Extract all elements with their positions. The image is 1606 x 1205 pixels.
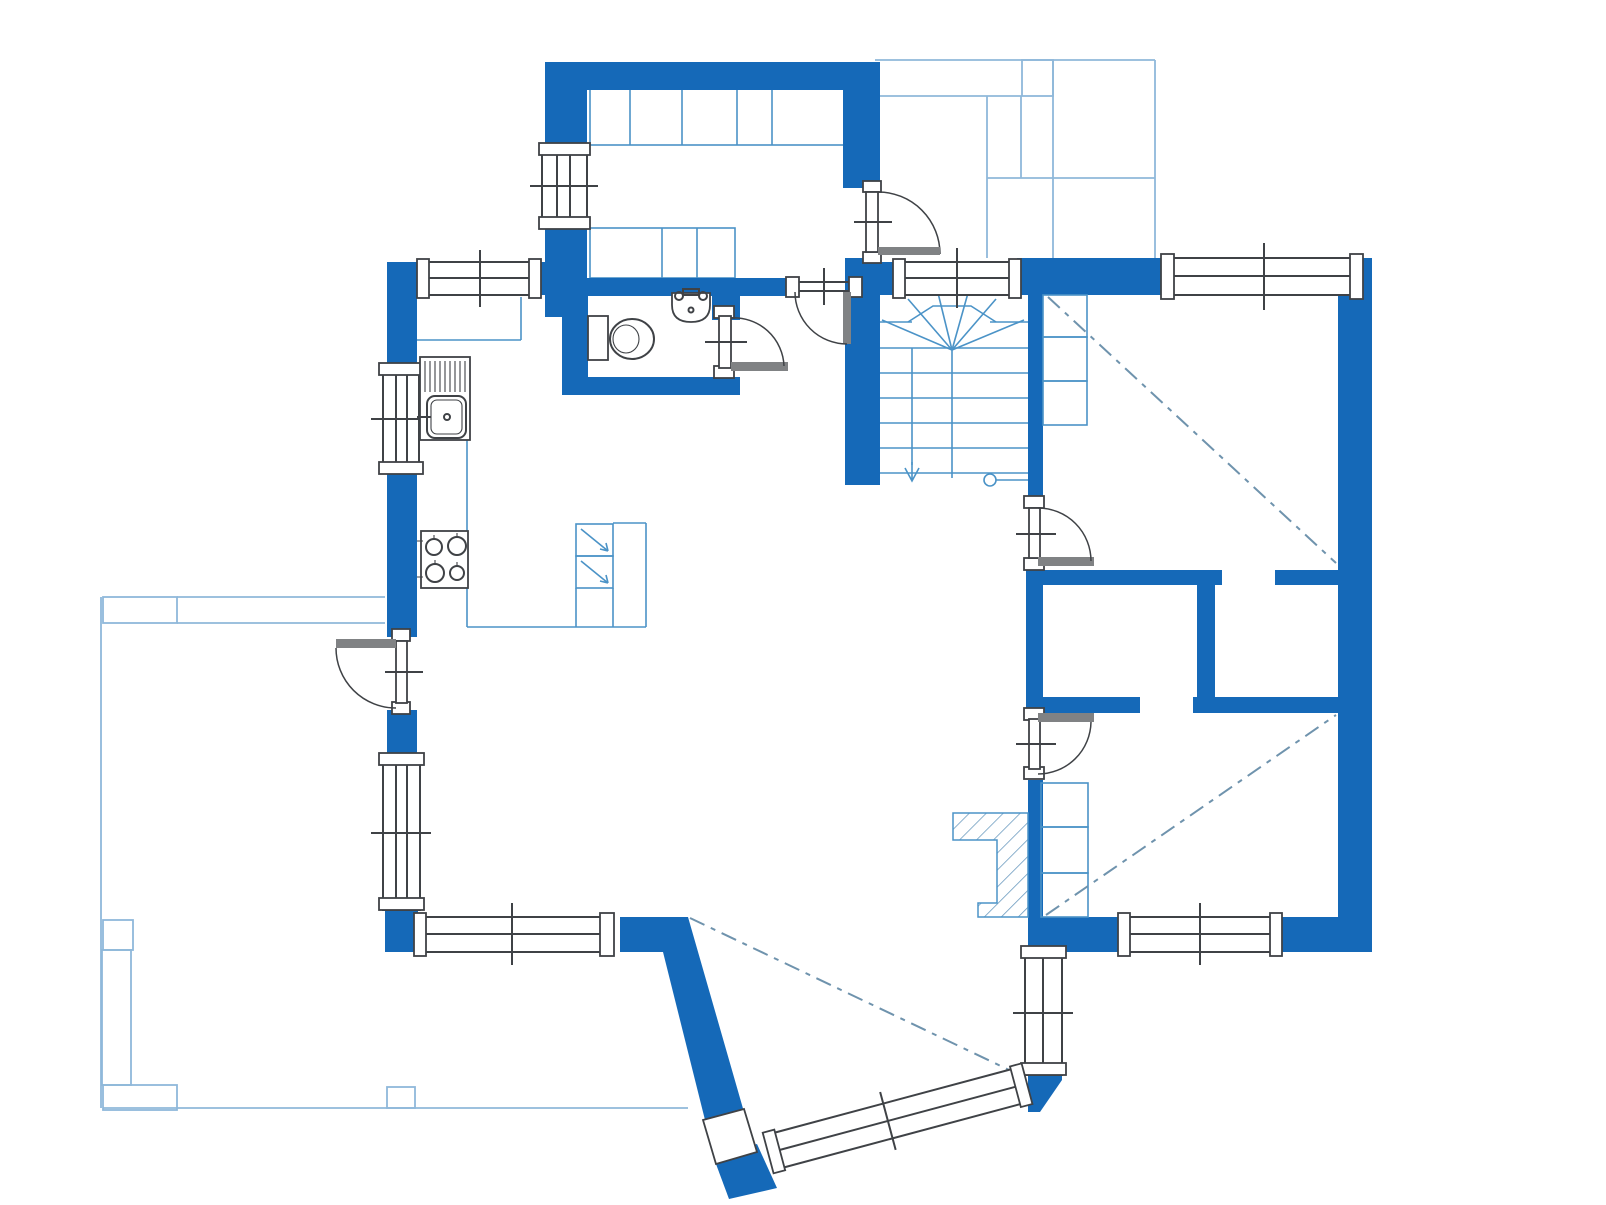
window-cap bbox=[379, 363, 423, 375]
wall-hall-upper bbox=[1028, 295, 1043, 500]
door-hall-swing bbox=[795, 292, 847, 344]
door-bedroom2-leaf bbox=[1038, 713, 1094, 722]
window-cap bbox=[417, 259, 429, 298]
wall-bath-bottom bbox=[562, 377, 740, 395]
fireplace bbox=[953, 813, 1028, 917]
toilet-tank bbox=[588, 316, 608, 360]
wall-closet-bottom-a bbox=[1043, 697, 1140, 713]
wall-west-2 bbox=[387, 470, 417, 637]
closet-shelf bbox=[1041, 827, 1088, 873]
wall-east-outer bbox=[1338, 295, 1372, 917]
closet-shelf bbox=[1043, 337, 1087, 381]
window-cap bbox=[414, 913, 426, 956]
stair-newel bbox=[984, 474, 996, 486]
terrace-post-left bbox=[103, 920, 133, 950]
closet-opening bbox=[1222, 568, 1275, 587]
window-cap bbox=[600, 913, 614, 956]
ceiling-diagonal-bedroom2 bbox=[1046, 715, 1336, 915]
wall-north-mid bbox=[1017, 258, 1165, 295]
wall-angled bbox=[620, 917, 744, 1124]
window-cap bbox=[529, 259, 541, 298]
window-cap bbox=[1021, 1063, 1066, 1075]
window-glassline bbox=[772, 1085, 1023, 1152]
window-cap bbox=[1350, 254, 1363, 299]
stair-winder bbox=[882, 320, 952, 350]
door-terrace-leaf bbox=[336, 639, 396, 648]
door-porch-leaf bbox=[878, 247, 940, 255]
door-bath-leaf bbox=[731, 362, 788, 371]
porch-post bbox=[1022, 60, 1053, 96]
wall-kitchen-top bbox=[545, 62, 880, 90]
wall-west-1 bbox=[387, 295, 417, 367]
door-terrace-swing bbox=[336, 648, 396, 708]
toilet-bowl bbox=[610, 319, 654, 359]
door-frame-cap bbox=[1024, 496, 1044, 508]
closet-shelf bbox=[1041, 873, 1088, 917]
wall-closet-top-a bbox=[1043, 570, 1222, 585]
floor-plan-svg bbox=[0, 0, 1606, 1205]
terrace-band-bottomleft bbox=[103, 1085, 177, 1110]
window-cap bbox=[1009, 259, 1021, 298]
stair-winder-rim bbox=[908, 306, 996, 322]
floor-plan bbox=[0, 0, 1606, 1205]
roof-overhang-line bbox=[690, 918, 1026, 1078]
window-cap bbox=[893, 259, 905, 298]
closet-shelf bbox=[1041, 783, 1088, 827]
window-cap bbox=[379, 462, 423, 474]
closet-shelf bbox=[1043, 381, 1087, 425]
door-frame-cap bbox=[863, 181, 881, 192]
terrace-band-topleft bbox=[103, 597, 177, 623]
wall-south-b bbox=[1278, 917, 1372, 952]
window-cap bbox=[539, 217, 590, 229]
toilet-bowl-inner bbox=[613, 325, 639, 353]
window-cap bbox=[1118, 913, 1130, 956]
wall-closet-bottom-b bbox=[1193, 697, 1340, 713]
window-cap bbox=[1021, 946, 1066, 958]
wall-closet-divider bbox=[1197, 585, 1215, 697]
wall-closets-left bbox=[1026, 570, 1043, 713]
wall-kitchen-right-column bbox=[843, 62, 880, 188]
wall-west-corner bbox=[385, 910, 418, 952]
closet-opening bbox=[1140, 694, 1193, 715]
door-bedroom2-swing bbox=[1038, 722, 1091, 774]
ceiling-diagonal-bedroom1 bbox=[1048, 297, 1336, 563]
closet-shelf bbox=[1043, 295, 1087, 337]
wall-south-foot bbox=[1028, 1072, 1062, 1112]
wall-west-3 bbox=[387, 710, 417, 757]
door-frame-cap bbox=[786, 277, 799, 297]
fridge-zigzag bbox=[581, 529, 608, 551]
terrace-post-bottom bbox=[387, 1087, 415, 1108]
window-cap bbox=[539, 143, 590, 155]
wall-closet-top-b bbox=[1275, 570, 1340, 585]
door-bedroom1-leaf bbox=[1038, 557, 1094, 566]
stair-winder bbox=[952, 320, 1024, 350]
window-cap bbox=[1161, 254, 1174, 299]
terrace-rail-left bbox=[102, 950, 131, 1085]
window-cap bbox=[379, 898, 424, 910]
stair-down-arrow bbox=[905, 462, 919, 481]
wall-bathroom-top bbox=[545, 278, 795, 296]
window-cap bbox=[379, 753, 424, 765]
door-hall-leaf bbox=[843, 292, 851, 344]
window-cap bbox=[1270, 913, 1282, 956]
wall-kitchen-left-upper bbox=[545, 62, 587, 147]
fridge-zigzag bbox=[581, 561, 608, 583]
